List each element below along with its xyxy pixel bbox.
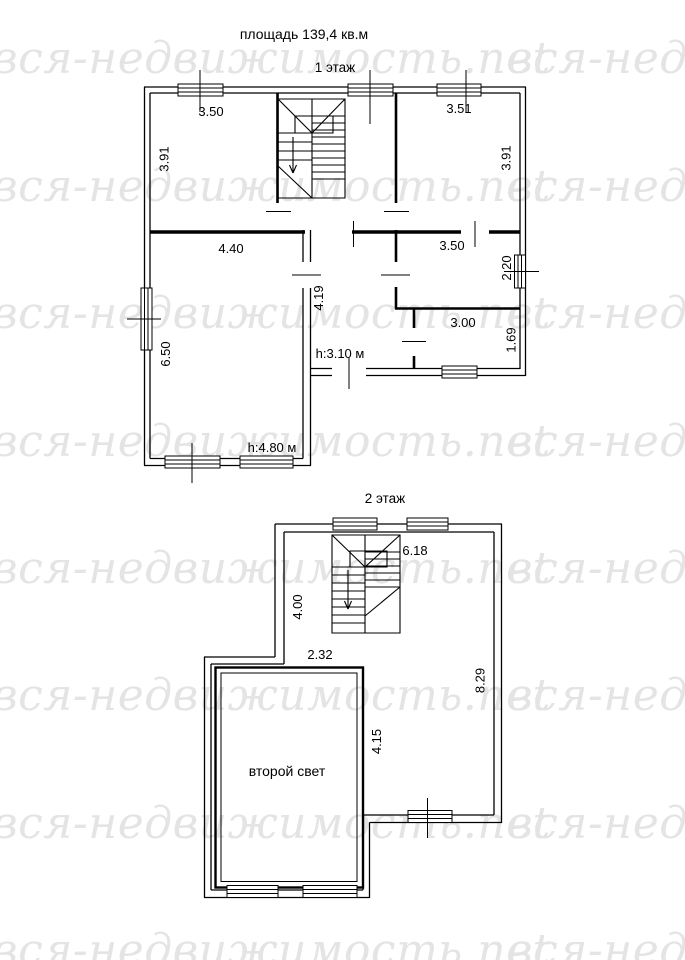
dim-f2-void-height: 4.15: [369, 729, 384, 754]
floor1-staircase: [278, 99, 345, 198]
dim-f1-topright-width: 3.51: [446, 101, 471, 116]
dim-f1-topright-height: 3.91: [499, 145, 514, 170]
window-frame: [333, 518, 377, 530]
void-room-label: второй свет: [249, 763, 326, 779]
ceiling-height-hall-label: h:3.10 м: [316, 346, 365, 361]
window: [333, 518, 377, 530]
dim-f1-living-height: 6.50: [158, 341, 173, 366]
window: [240, 456, 293, 468]
total-area-label: площадь 139,4 кв.м: [240, 26, 368, 42]
floor1-windows: [141, 84, 526, 468]
window: [442, 366, 477, 378]
dim-f2-main-width: 6.18: [402, 543, 427, 558]
window: [227, 886, 278, 898]
dim-f1-rightlow-width: 3.00: [450, 315, 475, 330]
window-frame: [227, 886, 278, 898]
ceiling-height-living-label: h:4.80 м: [248, 440, 297, 455]
window-frame: [408, 811, 452, 823]
window: [408, 811, 452, 823]
window-frame: [407, 518, 448, 530]
window: [437, 84, 481, 96]
floor2-plan: 2 этаж 6.18 4.00 2.32 8.29 4.15 второй с…: [204, 491, 502, 898]
floor2-title: 2 этаж: [365, 491, 405, 506]
dim-f2-passage-width: 2.32: [307, 647, 332, 662]
dim-f1-rightlow-height: 1.69: [504, 327, 519, 352]
floorplan-page: вся-недвижимость.net вся-недвижимость.ne…: [0, 0, 685, 960]
dim-f1-living-width: 4.40: [218, 241, 243, 256]
window-frame: [442, 366, 477, 378]
floor1-title: 1 этаж: [315, 60, 355, 75]
floor2-exterior-walls: [204, 524, 502, 898]
dim-f1-topleft-height: 3.91: [157, 146, 172, 171]
window-frame: [303, 886, 357, 898]
floor1-plan: площадь 139,4 кв.м 1 этаж 3.50 3.91 3.51…: [127, 26, 539, 483]
window: [303, 886, 357, 898]
floor2-staircase: [332, 535, 400, 633]
window: [407, 518, 448, 530]
dim-f1-rightmid-height: 2.20: [499, 255, 514, 280]
floorplan-drawing: площадь 139,4 кв.м 1 этаж 3.50 3.91 3.51…: [0, 0, 685, 960]
window-frame: [437, 84, 481, 96]
dim-f2-main-height: 8.29: [473, 668, 488, 693]
dim-f1-rightmid-width: 3.50: [439, 238, 464, 253]
window-frame: [240, 456, 293, 468]
dim-f1-hall-length: 4.19: [311, 285, 326, 310]
dim-f2-upperleft-height: 4.00: [290, 594, 305, 619]
dim-f1-topleft-width: 3.50: [198, 104, 223, 119]
